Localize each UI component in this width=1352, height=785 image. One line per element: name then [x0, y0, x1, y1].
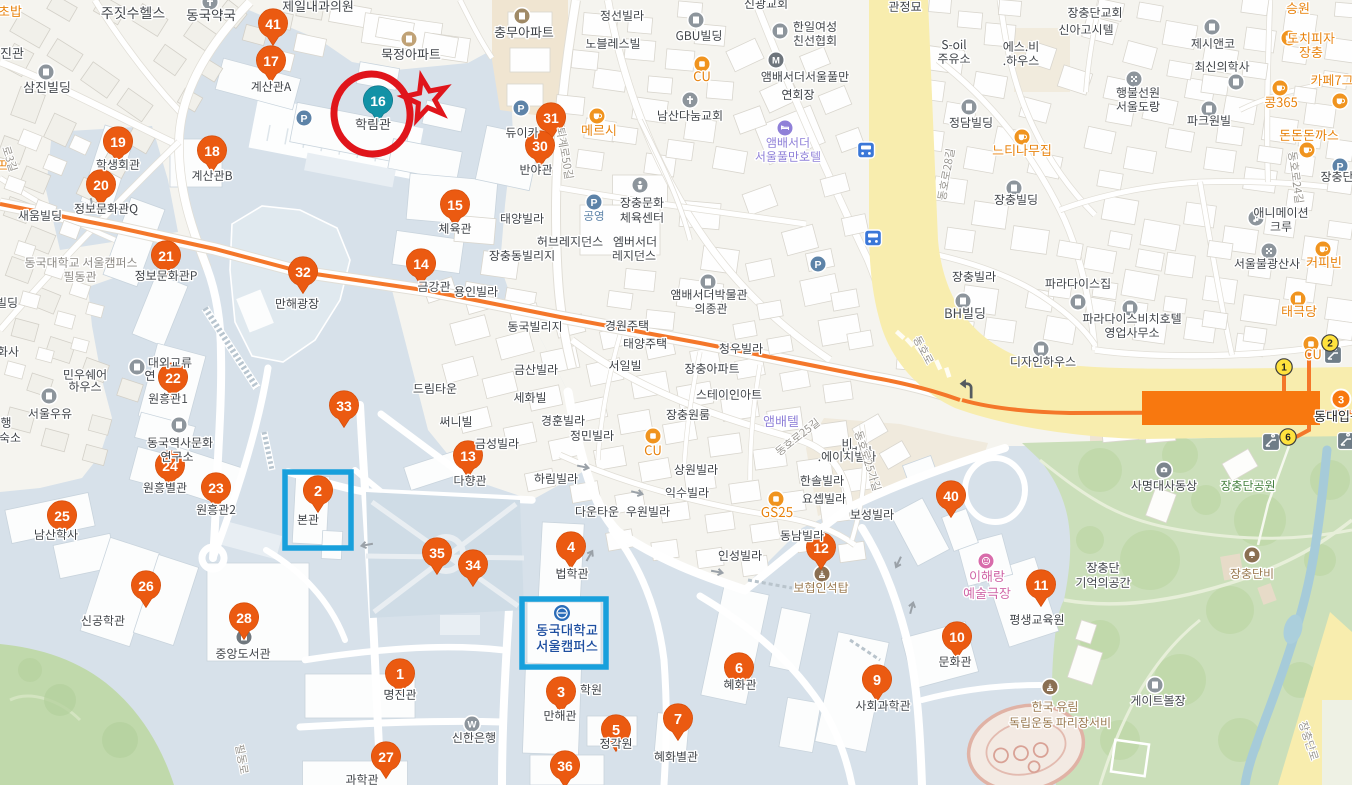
svg-text:1: 1: [396, 667, 404, 683]
svg-text:P: P: [300, 113, 307, 125]
svg-text:19: 19: [110, 134, 126, 150]
svg-text:3: 3: [1338, 395, 1344, 407]
svg-text:21: 21: [158, 248, 174, 264]
svg-text:32: 32: [295, 264, 311, 280]
svg-text:25: 25: [54, 508, 70, 524]
svg-text:P: P: [590, 197, 597, 209]
svg-text:35: 35: [429, 545, 445, 561]
svg-text:W: W: [468, 720, 477, 731]
svg-text:11: 11: [1034, 577, 1049, 593]
svg-text:41: 41: [265, 16, 281, 32]
svg-text:6: 6: [735, 661, 743, 677]
svg-text:16: 16: [370, 93, 386, 109]
svg-text:3: 3: [557, 685, 565, 701]
svg-text:M: M: [772, 56, 780, 67]
svg-text:P: P: [517, 103, 524, 115]
svg-text:31: 31: [543, 110, 559, 126]
svg-text:15: 15: [447, 197, 463, 213]
svg-text:2: 2: [314, 484, 322, 500]
svg-text:1: 1: [1281, 363, 1287, 374]
svg-text:17: 17: [263, 53, 279, 69]
svg-text:22: 22: [165, 370, 181, 386]
svg-text:20: 20: [93, 177, 109, 193]
svg-text:33: 33: [336, 398, 352, 414]
svg-text:6: 6: [1285, 433, 1291, 444]
svg-text:9: 9: [873, 673, 881, 689]
svg-text:P: P: [814, 259, 821, 271]
svg-text:18: 18: [204, 143, 220, 159]
svg-text:23: 23: [208, 480, 224, 496]
svg-text:26: 26: [138, 578, 154, 594]
svg-text:12: 12: [813, 540, 829, 556]
svg-text:27: 27: [378, 749, 394, 765]
svg-text:34: 34: [465, 557, 481, 573]
svg-text:13: 13: [460, 448, 476, 464]
svg-text:40: 40: [943, 488, 959, 504]
svg-text:4: 4: [567, 540, 575, 556]
svg-text:14: 14: [413, 256, 429, 272]
svg-text:5: 5: [612, 723, 620, 739]
svg-text:7: 7: [674, 712, 682, 728]
svg-text:36: 36: [557, 758, 573, 774]
svg-text:30: 30: [532, 138, 548, 154]
svg-text:10: 10: [949, 629, 965, 645]
svg-text:28: 28: [236, 610, 252, 626]
svg-text:2: 2: [1327, 339, 1333, 350]
